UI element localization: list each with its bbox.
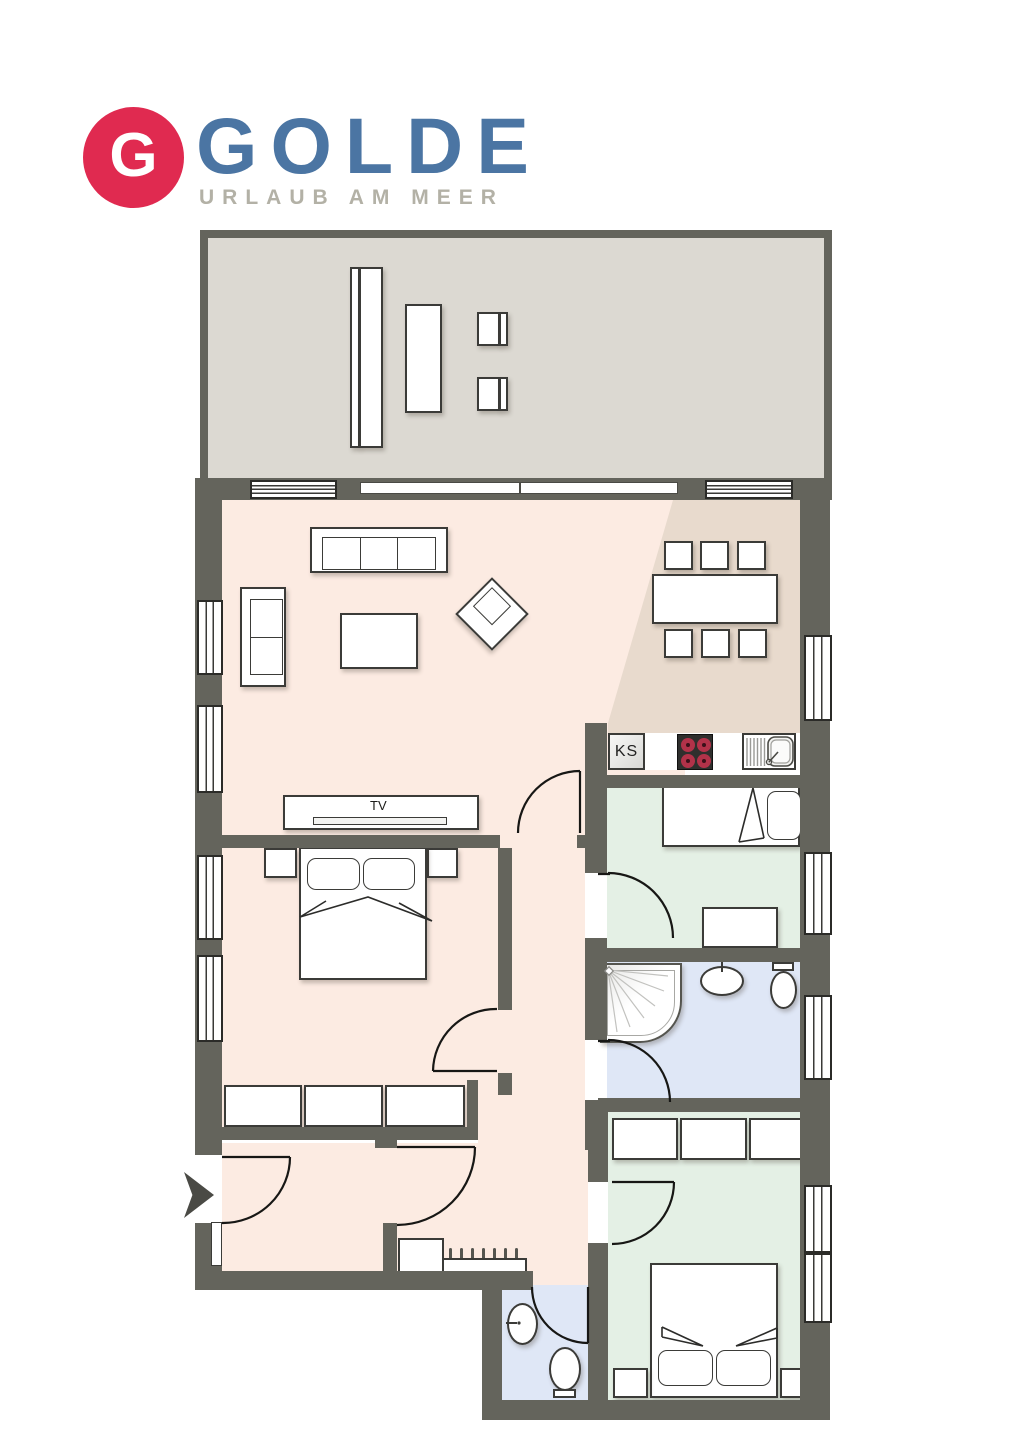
interior-wall [195, 1127, 478, 1140]
pillow [307, 858, 360, 890]
toilet [770, 971, 797, 1009]
wardrobe-section [680, 1118, 747, 1160]
window [197, 955, 223, 1042]
interior-wall [585, 848, 607, 873]
fridge-label: KS [615, 743, 638, 761]
interior-wall [598, 1098, 800, 1112]
nightstand [613, 1368, 648, 1398]
window [705, 480, 793, 499]
wardrobe-section [612, 1118, 678, 1160]
window [804, 852, 832, 935]
sun-lounger [359, 267, 383, 448]
terrace-wall [824, 230, 832, 478]
interior-wall [577, 835, 607, 848]
window [250, 480, 337, 499]
coat-hook [482, 1248, 485, 1258]
wc-toilet [549, 1347, 581, 1391]
hall-cabinet [398, 1238, 444, 1273]
window [197, 705, 223, 793]
window [197, 600, 223, 675]
interior-wall [598, 775, 800, 788]
terrace-chair-1 [477, 312, 500, 346]
sofa-two-seat [240, 587, 286, 687]
dining-chair [700, 541, 729, 570]
dining-chair [664, 541, 693, 570]
sofa-three-seat [310, 527, 448, 573]
interior-wall [588, 1112, 608, 1182]
terrace-wall [200, 230, 208, 478]
tv-screen [313, 817, 447, 825]
stove [677, 734, 713, 770]
coat-hook [449, 1248, 452, 1258]
pillow [658, 1350, 713, 1386]
interior-wall [498, 1073, 512, 1095]
logo-monogram: G [109, 120, 157, 191]
terrace-wall [200, 230, 832, 238]
terrace-sliding-door [360, 482, 678, 494]
terrace-floor [208, 238, 824, 478]
coat-hook [460, 1248, 463, 1258]
fridge-unit: KS [608, 733, 645, 770]
terrace-chair-1-backrest [499, 312, 508, 346]
pillow [363, 858, 415, 890]
coat-hook [515, 1248, 518, 1258]
interior-wall [383, 1223, 397, 1273]
interior-wall [588, 1243, 608, 1420]
dining-chair [701, 629, 730, 658]
toilet-tank [772, 962, 794, 971]
interior-wall [598, 948, 800, 962]
window [804, 995, 832, 1080]
entry-door-jamb [211, 1222, 222, 1266]
pillow [767, 791, 801, 840]
kitchen-sink-unit [742, 733, 796, 770]
floor-plan-page: G GOLDE URLAUB AM MEER TV KS [0, 0, 1018, 1440]
exterior-wall [482, 1400, 830, 1420]
wardrobe-section [304, 1085, 383, 1127]
dresser [702, 907, 778, 948]
interior-wall [467, 1080, 478, 1140]
wc-toilet-tank [553, 1389, 576, 1398]
interior-wall [375, 1140, 397, 1148]
wc-washbasin [507, 1303, 538, 1345]
logo-tagline-text: URLAUB AM MEER [199, 186, 504, 210]
terrace-chair-2 [477, 377, 500, 411]
dining-chair [737, 541, 766, 570]
dining-chair [738, 629, 767, 658]
window [804, 1185, 832, 1253]
wardrobe-section [224, 1085, 302, 1127]
nightstand [264, 848, 297, 878]
coat-hook [493, 1248, 496, 1258]
terrace-table [405, 304, 442, 413]
dining-chair [664, 629, 693, 658]
logo-mark: G [83, 107, 184, 208]
coffee-table [340, 613, 418, 669]
logo-brand-text: GOLDE [196, 100, 542, 192]
window [804, 635, 832, 721]
window [197, 855, 223, 940]
dining-table [652, 574, 778, 624]
exterior-wall [482, 1273, 502, 1420]
window [804, 1253, 832, 1323]
nightstand [427, 848, 458, 878]
tv-label: TV [370, 798, 387, 813]
coat-hook [471, 1248, 474, 1258]
terrace-chair-2-backrest [499, 377, 508, 411]
interior-wall [498, 848, 512, 1010]
wardrobe-section [385, 1085, 465, 1127]
pillow [716, 1350, 771, 1386]
interior-wall [222, 835, 500, 848]
washbasin [700, 966, 744, 996]
coat-hook [504, 1248, 507, 1258]
